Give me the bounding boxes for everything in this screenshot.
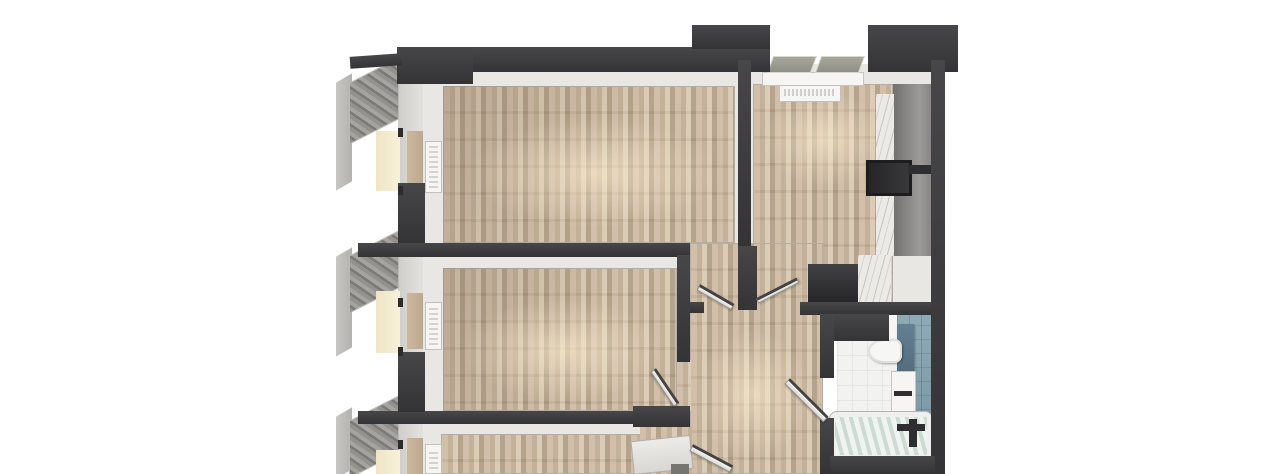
window-sill-radiator [425, 141, 442, 193]
door-jamb [690, 302, 704, 313]
kitchen-window-pane [767, 56, 817, 73]
wall-between-middle-bottom-rooms [358, 411, 636, 424]
bathroom-wall-left-upper [820, 314, 834, 378]
doorway-floor [677, 360, 691, 411]
stove [866, 160, 912, 196]
wall-between-top-middle-rooms [358, 243, 690, 257]
hinge-tick [398, 347, 403, 356]
kitchen-window-sill [762, 72, 864, 86]
wall-hall-doorpost [738, 246, 757, 310]
sunlight-patch [460, 300, 665, 400]
kitchen-window-pane [815, 56, 865, 73]
hinge-tick [398, 440, 403, 449]
island-marble-top [858, 255, 891, 303]
toilet [868, 339, 902, 363]
balcony-floor-strip [376, 450, 400, 474]
bedroom-bottom-floor [441, 434, 657, 474]
kitchen-radiator [779, 85, 841, 102]
vanity-faucet [894, 391, 912, 396]
window-sill-radiator [425, 302, 442, 350]
wall-corner-top-left [397, 47, 473, 84]
hinge-tick [398, 298, 403, 307]
wall-pillar-top [692, 25, 770, 49]
tub-faucet-spout [909, 419, 917, 447]
sunlight-patch [695, 330, 810, 460]
balcony-floor-strip [376, 131, 400, 191]
balcony-floor-strip [376, 291, 400, 353]
bathroom-wall-bottom [830, 456, 935, 474]
floorplan-render [0, 0, 1280, 474]
window-sill-radiator [425, 444, 442, 474]
hinge-tick [398, 128, 403, 137]
floor-shadow-stub [671, 464, 689, 474]
wall-end-block [633, 406, 690, 427]
kitchen-island [808, 264, 860, 304]
facade-pier [398, 352, 425, 412]
wall-bedroom-hall [677, 255, 690, 362]
exterior-wall-right [931, 60, 945, 474]
wall-bedroom-kitchen [738, 60, 751, 246]
hinge-tick [398, 186, 403, 195]
sunlight-patch [470, 118, 720, 228]
